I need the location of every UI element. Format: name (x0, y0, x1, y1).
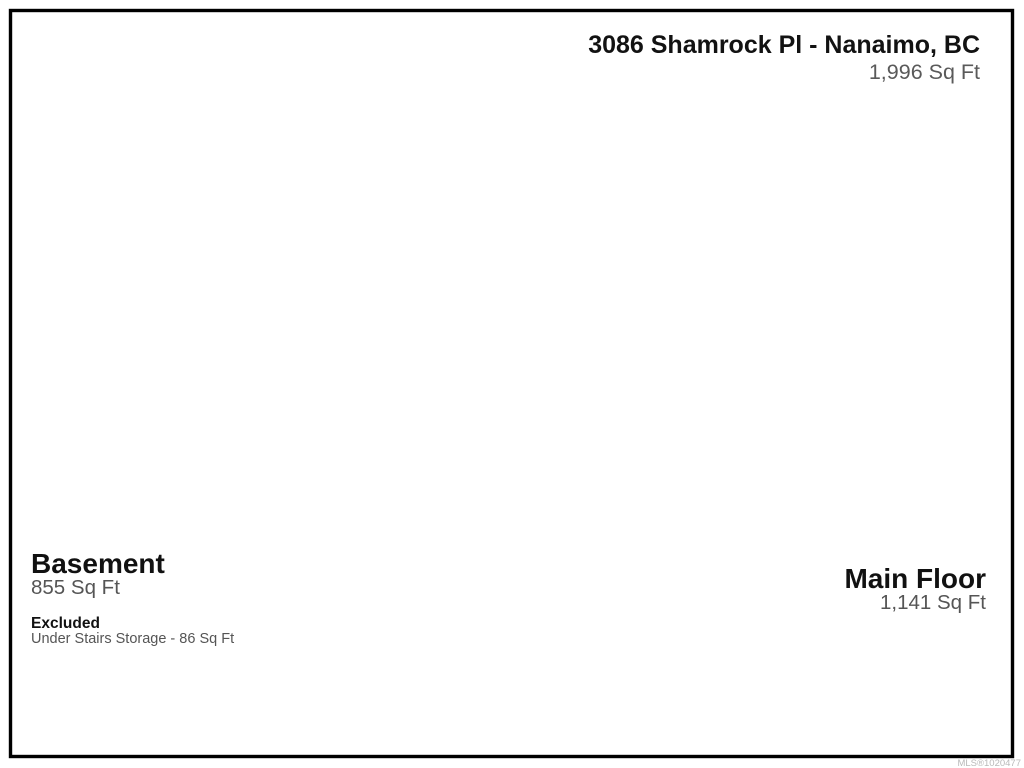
svg-text:1,996 Sq Ft: 1,996 Sq Ft (869, 60, 980, 84)
svg-text:1,141 Sq Ft: 1,141 Sq Ft (880, 591, 986, 614)
svg-text:Main Floor: Main Floor (844, 563, 986, 594)
svg-text:Excluded: Excluded (31, 615, 100, 632)
svg-text:Basement: Basement (31, 548, 165, 579)
svg-text:Under Stairs Storage - 86 Sq F: Under Stairs Storage - 86 Sq Ft (31, 631, 234, 647)
svg-text:MLS®1020477: MLS®1020477 (957, 758, 1021, 768)
svg-text:3086 Shamrock Pl - Nanaimo, BC: 3086 Shamrock Pl - Nanaimo, BC (588, 31, 980, 59)
svg-text:855 Sq Ft: 855 Sq Ft (31, 576, 120, 599)
